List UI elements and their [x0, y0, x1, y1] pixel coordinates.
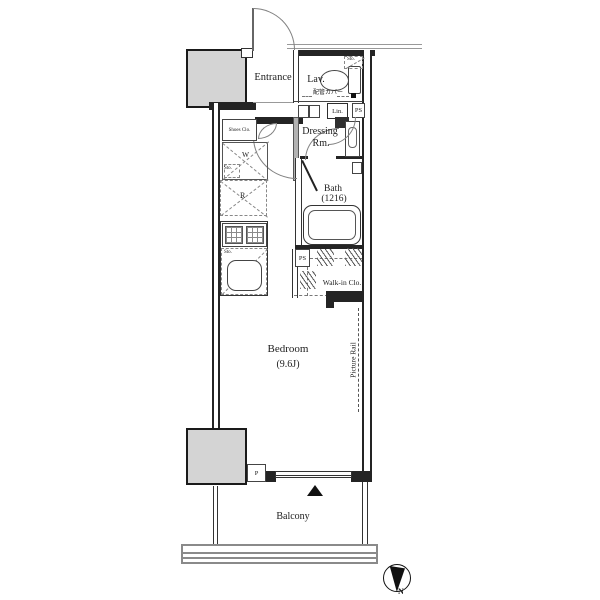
balcony-wall-right: [362, 482, 368, 545]
bedroom-label: Bedroom: [268, 343, 309, 356]
toilet-tank: [348, 66, 361, 94]
washer-box: [222, 142, 268, 180]
lavatory-label: Lav.: [307, 74, 324, 86]
hanger-hatch-3: [300, 271, 316, 289]
entrance-label: Entrance: [254, 72, 291, 84]
corridor-wall-line: [287, 44, 422, 49]
wall-lavatory-bottom: [294, 101, 363, 102]
pipe-shaft-label: P: [255, 470, 259, 477]
wic-entry-dashed-line: [294, 295, 328, 296]
window-sash-line: [276, 475, 351, 476]
balcony-rail-line-1: [181, 544, 378, 546]
dressing-room-label-1: Dressing: [302, 126, 338, 138]
floor-plan: P Sto. 配管カバー Lin. PS Shoes Clo. W: [0, 0, 600, 600]
hanger-hatch-2: [345, 248, 362, 266]
balcony-rail-line-3: [181, 557, 378, 559]
pipe-shaft-box: P: [247, 464, 266, 482]
wall-left: [212, 103, 220, 431]
pipe-space-upper-label: PS: [355, 107, 362, 114]
dressing-room-label-2: Rm.: [313, 138, 330, 150]
shoes-closet-label: Shoes Clo.: [229, 128, 251, 133]
bathtub-inner: [308, 210, 356, 240]
refrigerator-label: R: [240, 191, 245, 200]
bath-door-leaf: [301, 160, 318, 191]
balcony-label: Balcony: [276, 511, 309, 523]
pipe-cover-dash-left: [302, 96, 312, 97]
bath-shelf: [352, 162, 362, 174]
shoes-closet-box: Shoes Clo.: [222, 119, 257, 141]
window-direction-marker: [307, 485, 323, 496]
compass-north-label: N: [398, 587, 404, 596]
structural-block-top-left: [186, 49, 247, 108]
structural-block-bottom-left: [186, 428, 247, 485]
balcony-wall-left: [213, 486, 218, 545]
hanger-hatch-1: [317, 249, 334, 266]
pipe-cover-dash-right: [337, 96, 349, 97]
entrance-door-swing-arc: [253, 8, 295, 50]
balcony-rail-end-left: [181, 544, 183, 564]
pipe-space-wic-label: PS: [299, 255, 306, 262]
vanity-counter-left: [298, 105, 309, 118]
bedroom-size-label: (9.6J): [276, 359, 299, 371]
window-stub-right: [351, 471, 370, 482]
picture-rail-label: Picture Rail: [350, 342, 359, 378]
pipe-cover-marker: [351, 93, 356, 98]
balcony-window: [275, 471, 352, 478]
stove-burner-right: [246, 226, 264, 244]
wall-lavatory-left: [293, 50, 299, 103]
balcony-rail-line-4: [181, 562, 378, 564]
stove-burner-left: [225, 226, 243, 244]
entrance-step-line: [253, 102, 295, 103]
kitchen-storage-label: Sto.: [224, 250, 232, 256]
washer-label: W: [242, 151, 249, 160]
wall-wic-bottom: [327, 291, 363, 302]
kitchen-sink: [227, 260, 262, 291]
walk-in-closet-label: Walk-in Clo.: [323, 279, 362, 288]
pipe-space-wic-box: PS: [295, 249, 310, 267]
linen-label: Lin.: [332, 108, 343, 115]
washer-storage-label: Sto.: [224, 166, 232, 172]
storage-over-toilet-label: Sto.: [347, 57, 355, 63]
bath-size-label: (1216): [321, 194, 346, 205]
balcony-rail-end-right: [376, 544, 378, 564]
vanity-counter-right: [309, 105, 320, 118]
balcony-rail-line-2: [181, 552, 378, 554]
pipe-space-upper-box: PS: [352, 103, 365, 118]
